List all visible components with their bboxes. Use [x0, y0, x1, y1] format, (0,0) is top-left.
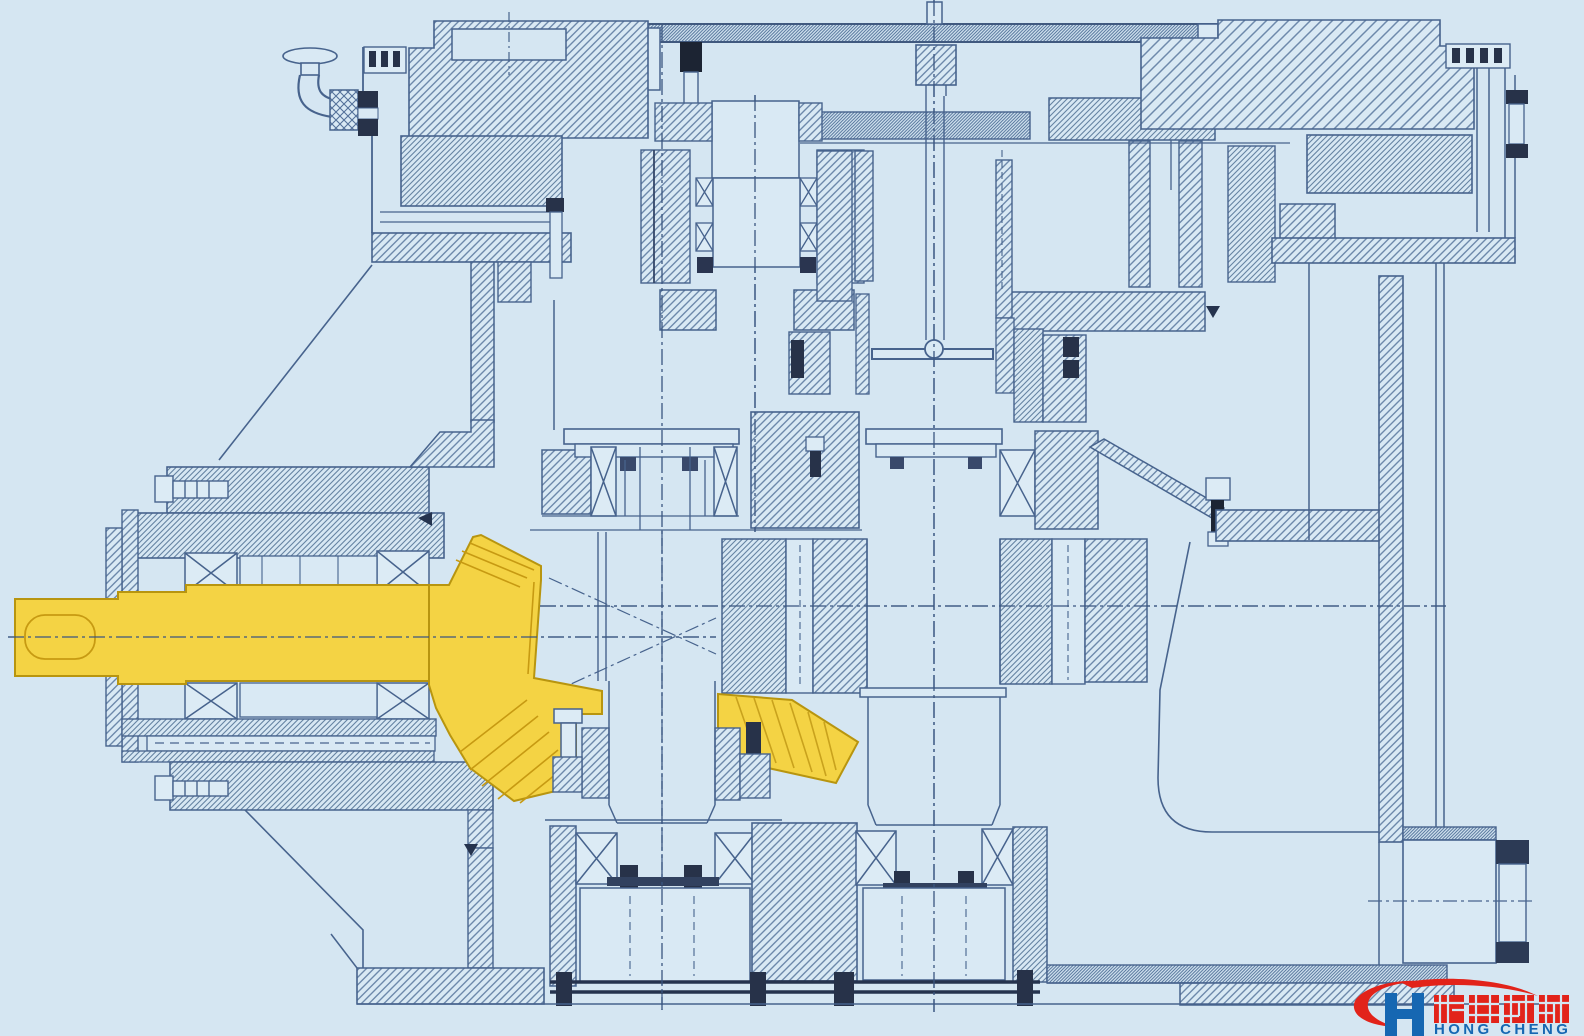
svg-text:HONG CHENG: HONG CHENG [1434, 1021, 1571, 1036]
